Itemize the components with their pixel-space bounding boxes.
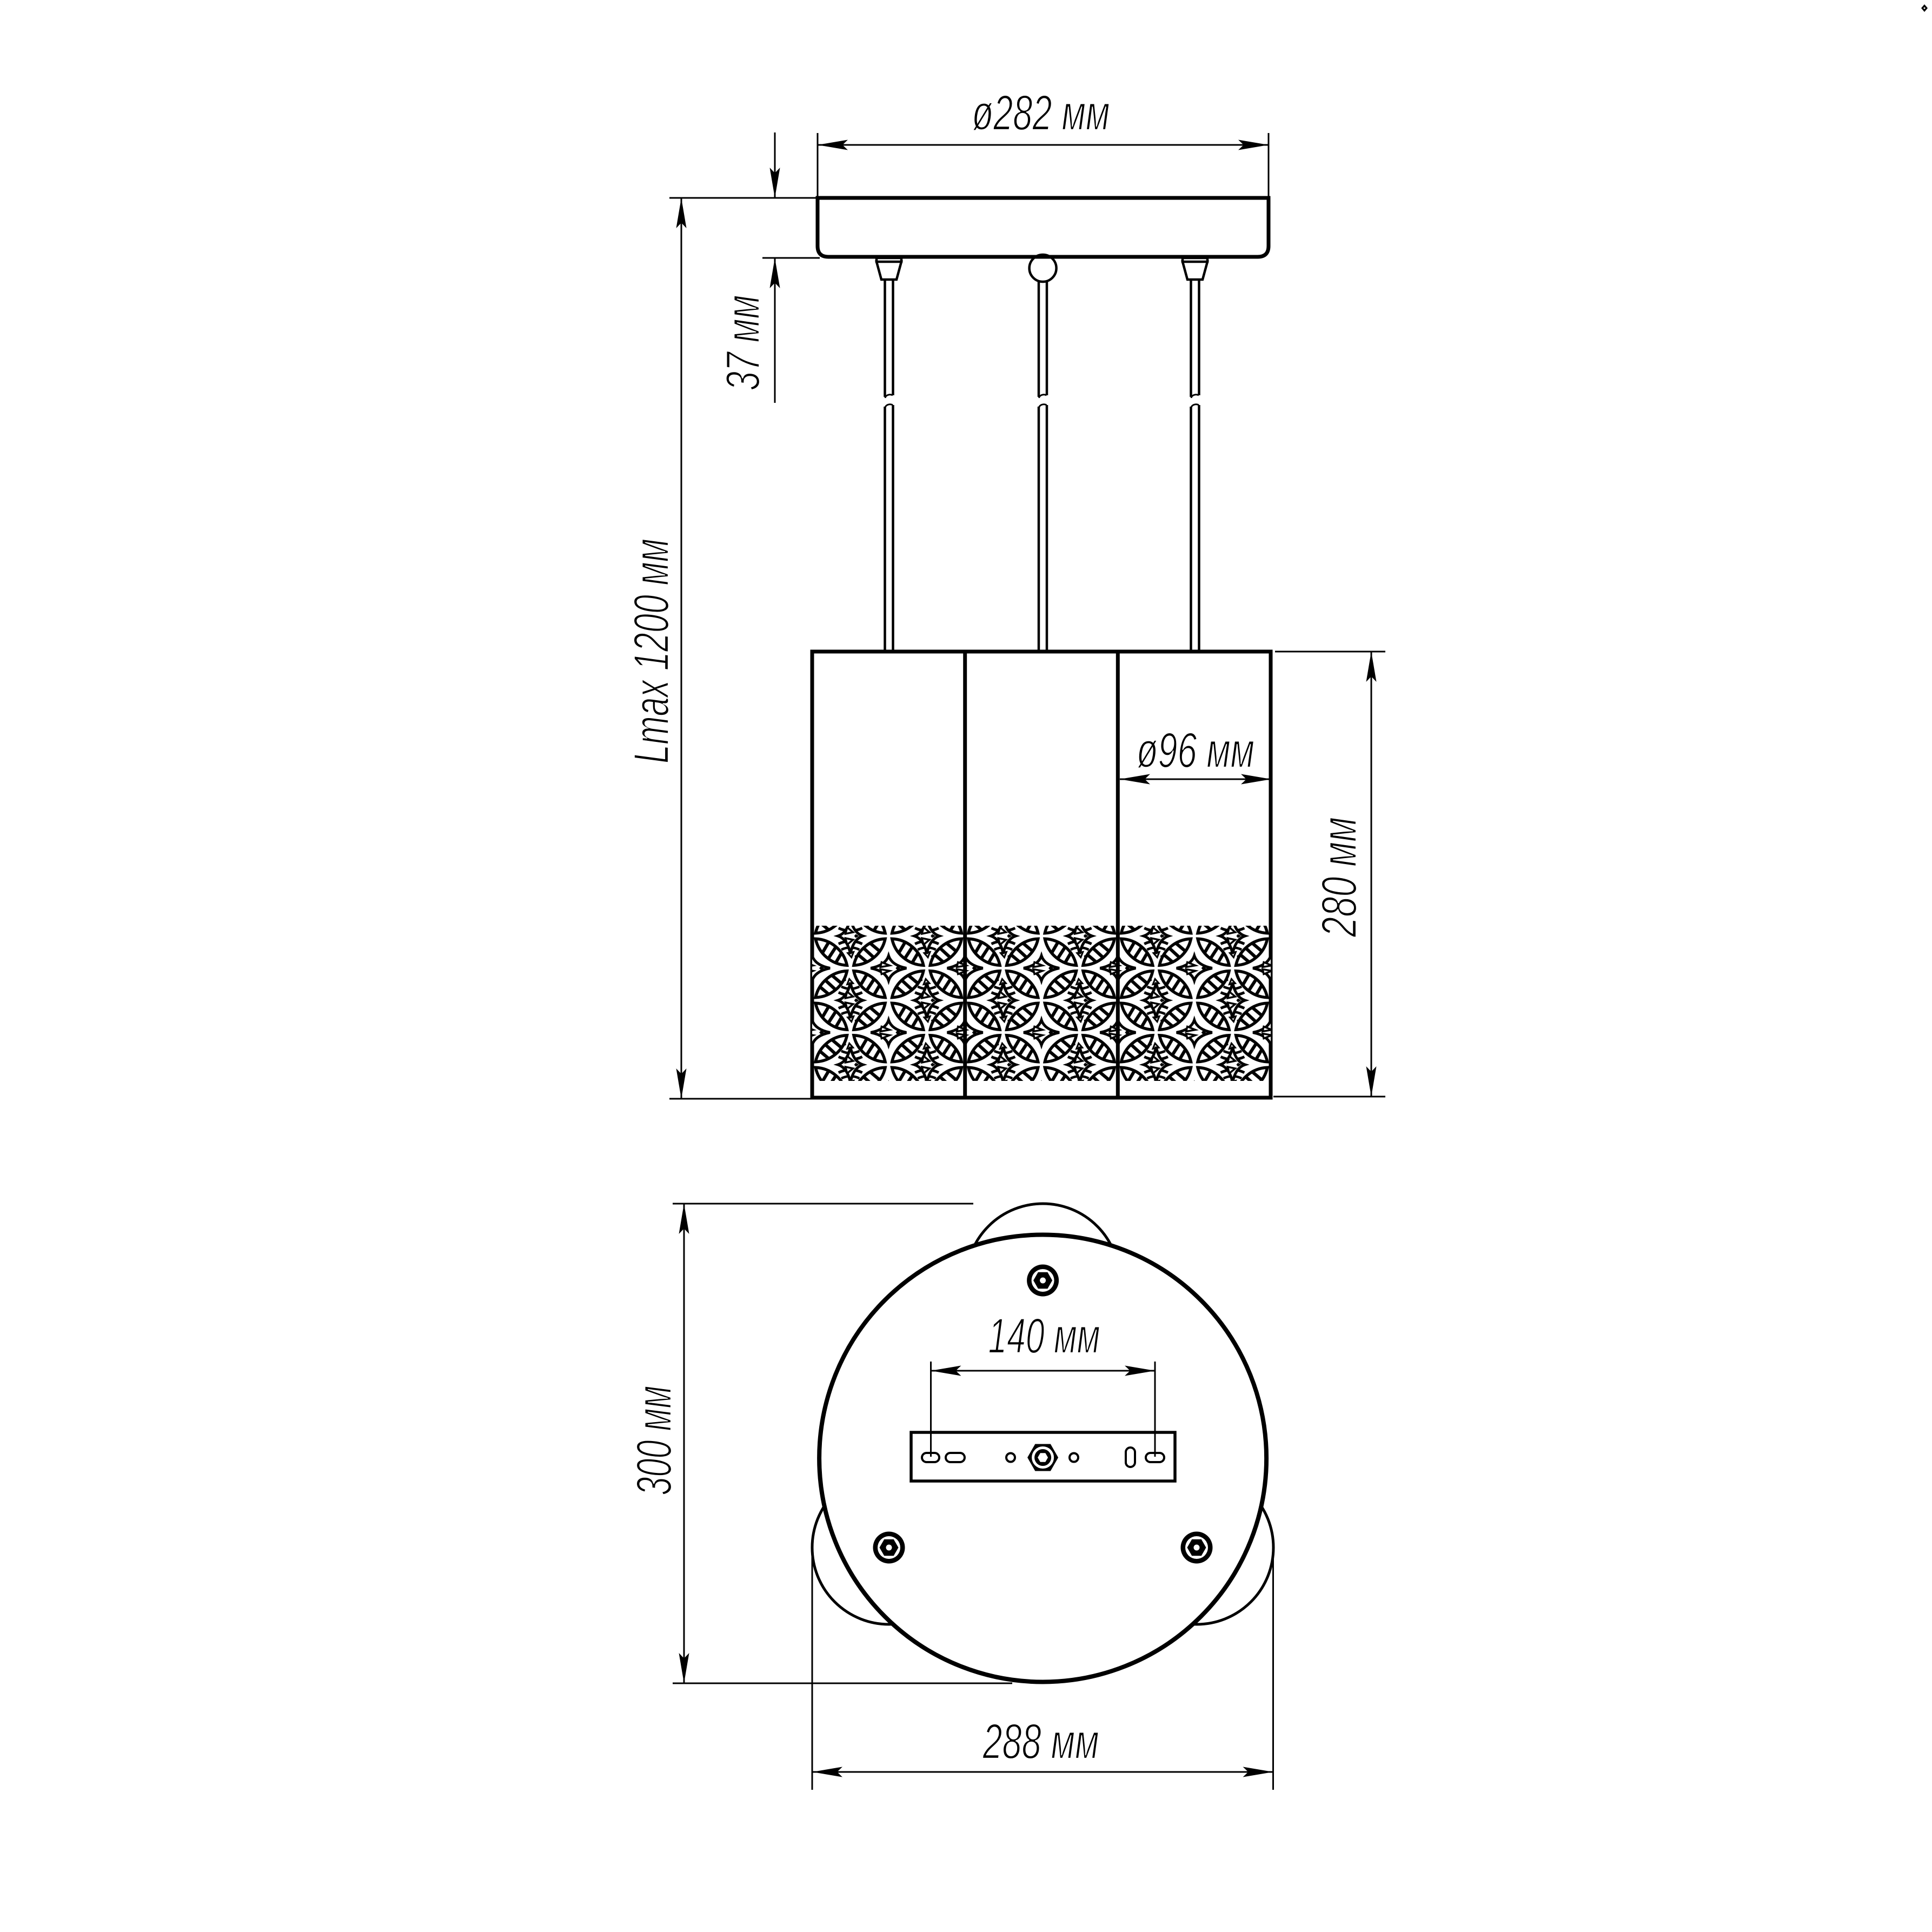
svg-text:37 мм: 37 мм (716, 295, 769, 391)
svg-text:288 мм: 288 мм (982, 1714, 1099, 1769)
svg-text:ø282 мм: ø282 мм (972, 85, 1110, 141)
svg-text:280 мм: 280 мм (1312, 817, 1367, 938)
svg-text:140 мм: 140 мм (988, 1309, 1100, 1364)
svg-text:300 мм: 300 мм (627, 1386, 682, 1496)
svg-text:Lmax 1200 мм: Lmax 1200 мм (624, 539, 679, 763)
svg-text:ø96 мм: ø96 мм (1137, 723, 1254, 778)
